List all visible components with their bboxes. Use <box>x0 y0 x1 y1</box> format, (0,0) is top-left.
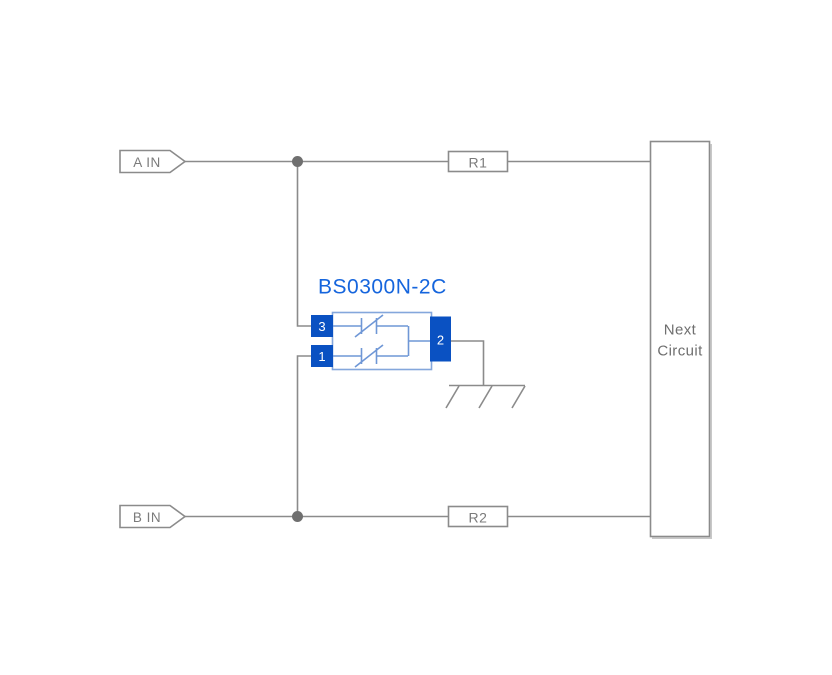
circuit-diagram: A IN B IN R1 R2 Next Circuit BS0300N-2C <box>0 0 832 675</box>
pin-3-label: 3 <box>318 319 325 334</box>
ground-icon <box>446 386 525 409</box>
wire-a-branch-to-pin3 <box>298 162 312 327</box>
next-circuit-label-line2: Circuit <box>657 343 703 360</box>
pin-1-label: 1 <box>318 349 325 364</box>
resistor-r2-label: R2 <box>469 510 488 526</box>
next-circuit-label-line1: Next <box>664 322 697 339</box>
wire-pin2-to-ground <box>451 341 484 385</box>
pin-2-label: 2 <box>437 333 444 348</box>
component-title: BS0300N-2C <box>318 276 447 299</box>
junction-dot-b <box>292 511 303 522</box>
resistor-r1-label: R1 <box>469 155 488 171</box>
junction-dot-a <box>292 156 303 167</box>
next-circuit-box <box>651 142 710 537</box>
wire-b-branch-to-pin1 <box>298 356 312 517</box>
circuit-diagram-page: A IN B IN R1 R2 Next Circuit BS0300N-2C <box>0 0 832 675</box>
terminal-b-in-label: B IN <box>133 510 161 525</box>
terminal-a-in-label: A IN <box>133 155 161 170</box>
